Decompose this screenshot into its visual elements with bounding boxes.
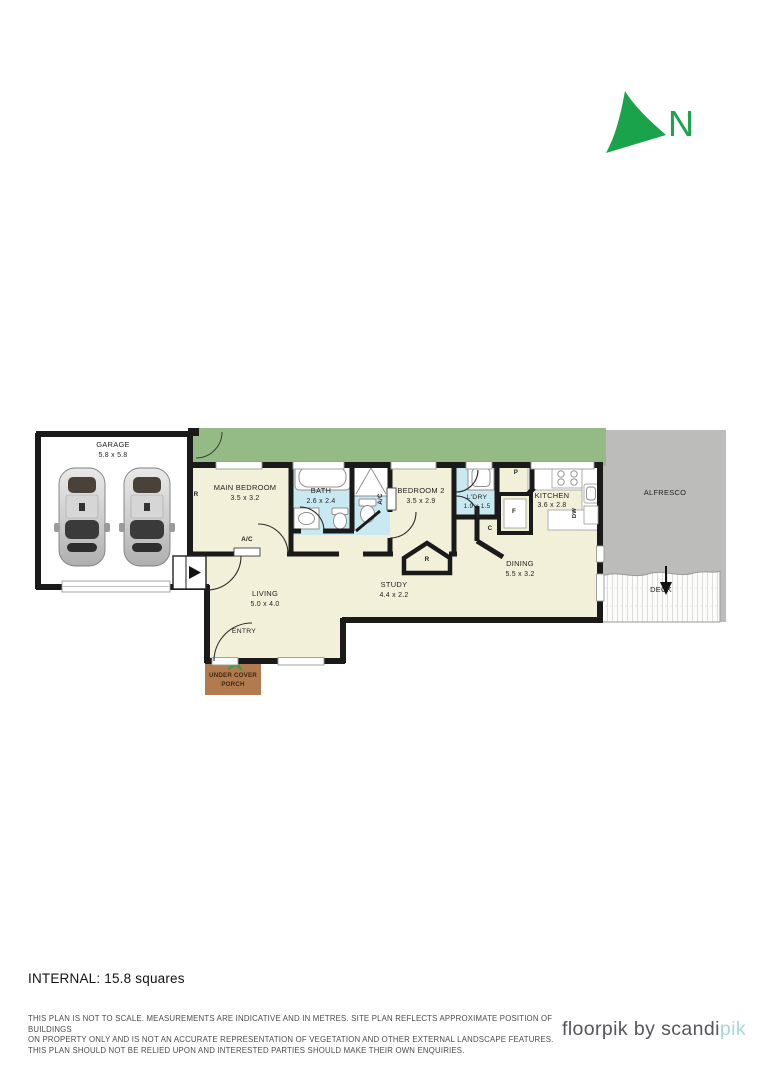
- cooktop-icon: [552, 468, 582, 488]
- room-dims-laundry: 1.9 x 1.5: [464, 504, 491, 510]
- deck-area: [602, 566, 720, 622]
- logo-primary-text: floorpik by scandi: [562, 1018, 720, 1040]
- vanity-icon: [294, 508, 319, 529]
- disclaimer-line-2: ON PROPERTY ONLY AND IS NOT AN ACCURATE …: [28, 1035, 568, 1046]
- disclaimer-line-1: THIS PLAN IS NOT TO SCALE. MEASUREMENTS …: [28, 1014, 568, 1035]
- north-label: N: [668, 103, 694, 145]
- car-right: [119, 468, 175, 566]
- marker-robe-main-bedroom: R: [194, 492, 199, 498]
- shower-icon: [354, 464, 388, 496]
- room-dims-main-bedroom: 3.5 x 3.2: [230, 495, 259, 502]
- room-label-study: STUDY: [381, 581, 408, 589]
- room-label-bedroom2: BEDROOM 2: [397, 487, 444, 495]
- room-label-laundry: L'DRY: [467, 495, 488, 502]
- ac-unit-main-bedroom: [234, 548, 260, 556]
- marker-robe-study: R: [425, 557, 430, 563]
- garage-step: [173, 556, 206, 589]
- north-arrow-icon: [606, 91, 666, 153]
- room-label-main-bedroom: MAIN BEDROOM: [214, 484, 277, 492]
- car-left: [54, 468, 110, 566]
- room-label-bath: BATH: [311, 487, 331, 495]
- logo-accent-text: pik: [720, 1018, 746, 1040]
- dishwasher-unit: [584, 506, 598, 524]
- marker-pantry: P: [514, 470, 518, 476]
- room-dims-kitchen: 3.6 x 2.8: [537, 502, 566, 509]
- room-dims-bedroom2: 3.5 x 2.9: [406, 498, 435, 505]
- toilet-icon-bath: [332, 508, 348, 529]
- grass-strip: [188, 428, 606, 466]
- room-dims-dining: 5.5 x 3.2: [505, 571, 534, 578]
- marker-cupboard: C: [488, 526, 493, 532]
- room-dims-garage: 5.8 x 5.8: [98, 452, 127, 459]
- room-label-garage: GARAGE: [96, 441, 130, 449]
- room-dims-bath: 2.6 x 2.4: [306, 498, 335, 505]
- kitchen-sink-icon: [584, 484, 598, 503]
- marker-fridge: F: [512, 509, 516, 515]
- internal-area-text: INTERNAL: 15.8 squares: [28, 971, 185, 986]
- marker-dishwasher: DW: [573, 508, 579, 518]
- room-dims-living: 5.0 x 4.0: [250, 601, 279, 608]
- ac-unit-bedroom2: [387, 488, 396, 510]
- floor-plan-page: N GARAGE 5.8 x 5.8 MAIN BEDROOM 3.5 x 3.…: [0, 0, 764, 1080]
- floorpik-logo: floorpik by scandipik: [562, 1018, 746, 1041]
- room-label-dining: DINING: [506, 560, 534, 568]
- room-label-entry: ENTRY: [232, 629, 256, 636]
- marker-ac-main-bedroom: A/C: [241, 537, 253, 543]
- room-label-living: LIVING: [252, 590, 278, 598]
- porch-label-line1: UNDER COVER: [209, 673, 257, 679]
- toilet-icon-ensuite: [359, 499, 376, 523]
- disclaimer-line-3: THIS PLAN SHOULD NOT BE RELIED UPON AND …: [28, 1046, 568, 1057]
- marker-ac-bedroom2: A/C: [378, 493, 384, 505]
- garage-door: [62, 581, 170, 592]
- room-label-deck: DECK: [650, 586, 672, 594]
- porch-label-line2: PORCH: [221, 682, 244, 688]
- room-label-kitchen: KITCHEN: [535, 492, 570, 500]
- floor-plan-drawing: [0, 0, 764, 1080]
- room-dims-study: 4.4 x 2.2: [379, 592, 408, 599]
- disclaimer-text: THIS PLAN IS NOT TO SCALE. MEASUREMENTS …: [28, 1014, 568, 1056]
- room-label-alfresco: ALFRESCO: [644, 489, 686, 497]
